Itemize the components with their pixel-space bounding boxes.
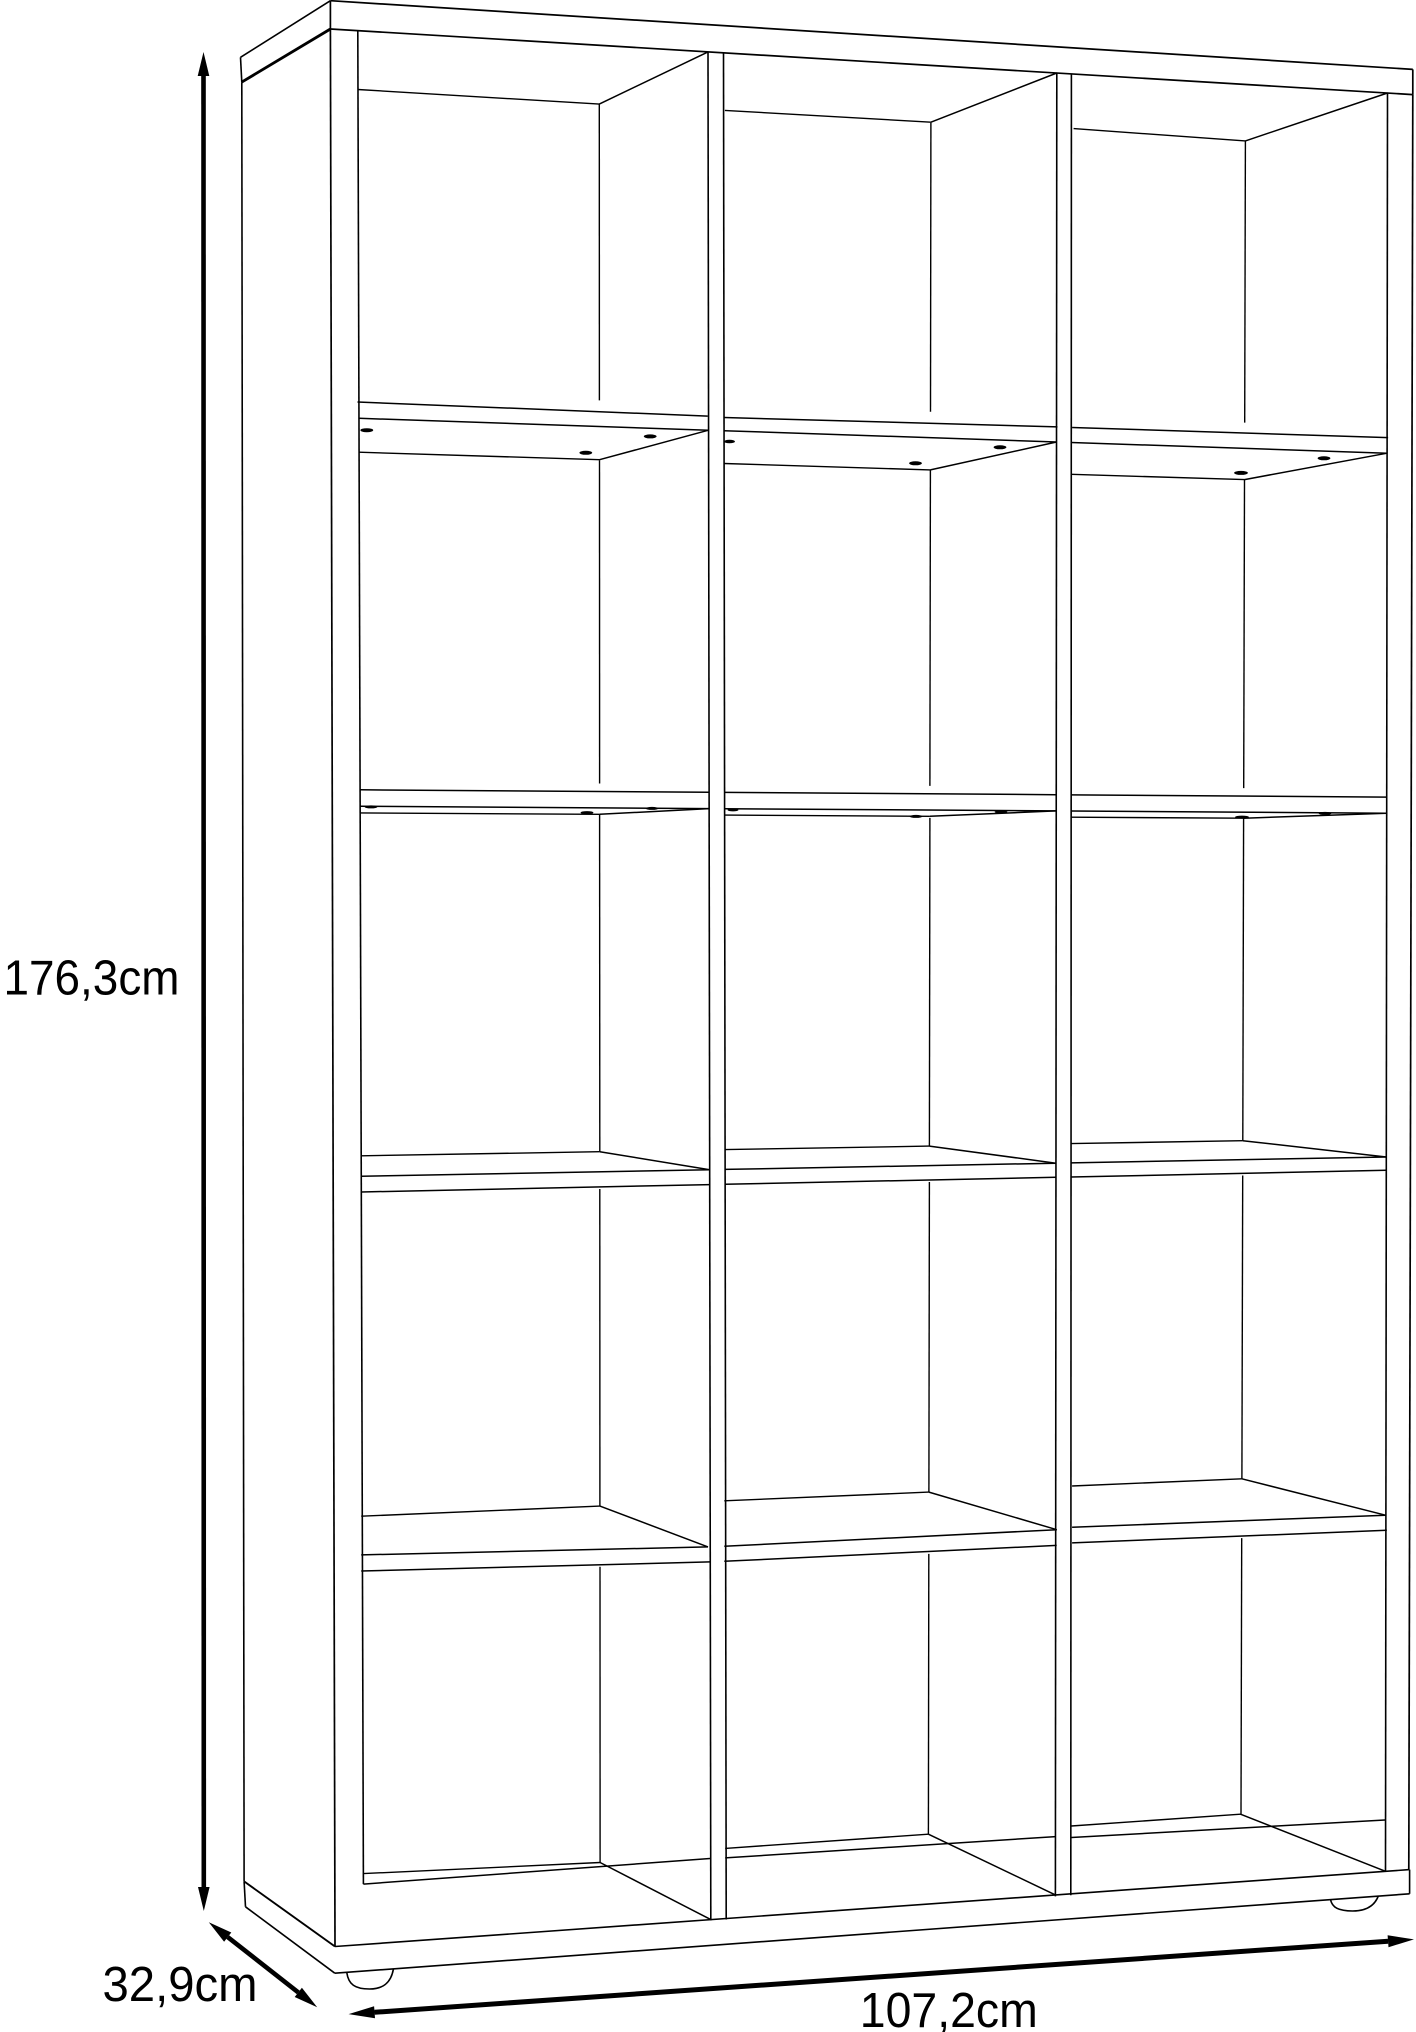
svg-text:176,3cm: 176,3cm <box>4 950 180 1005</box>
svg-text:32,9cm: 32,9cm <box>103 1957 258 2012</box>
svg-text:107,2cm: 107,2cm <box>860 1983 1038 2032</box>
